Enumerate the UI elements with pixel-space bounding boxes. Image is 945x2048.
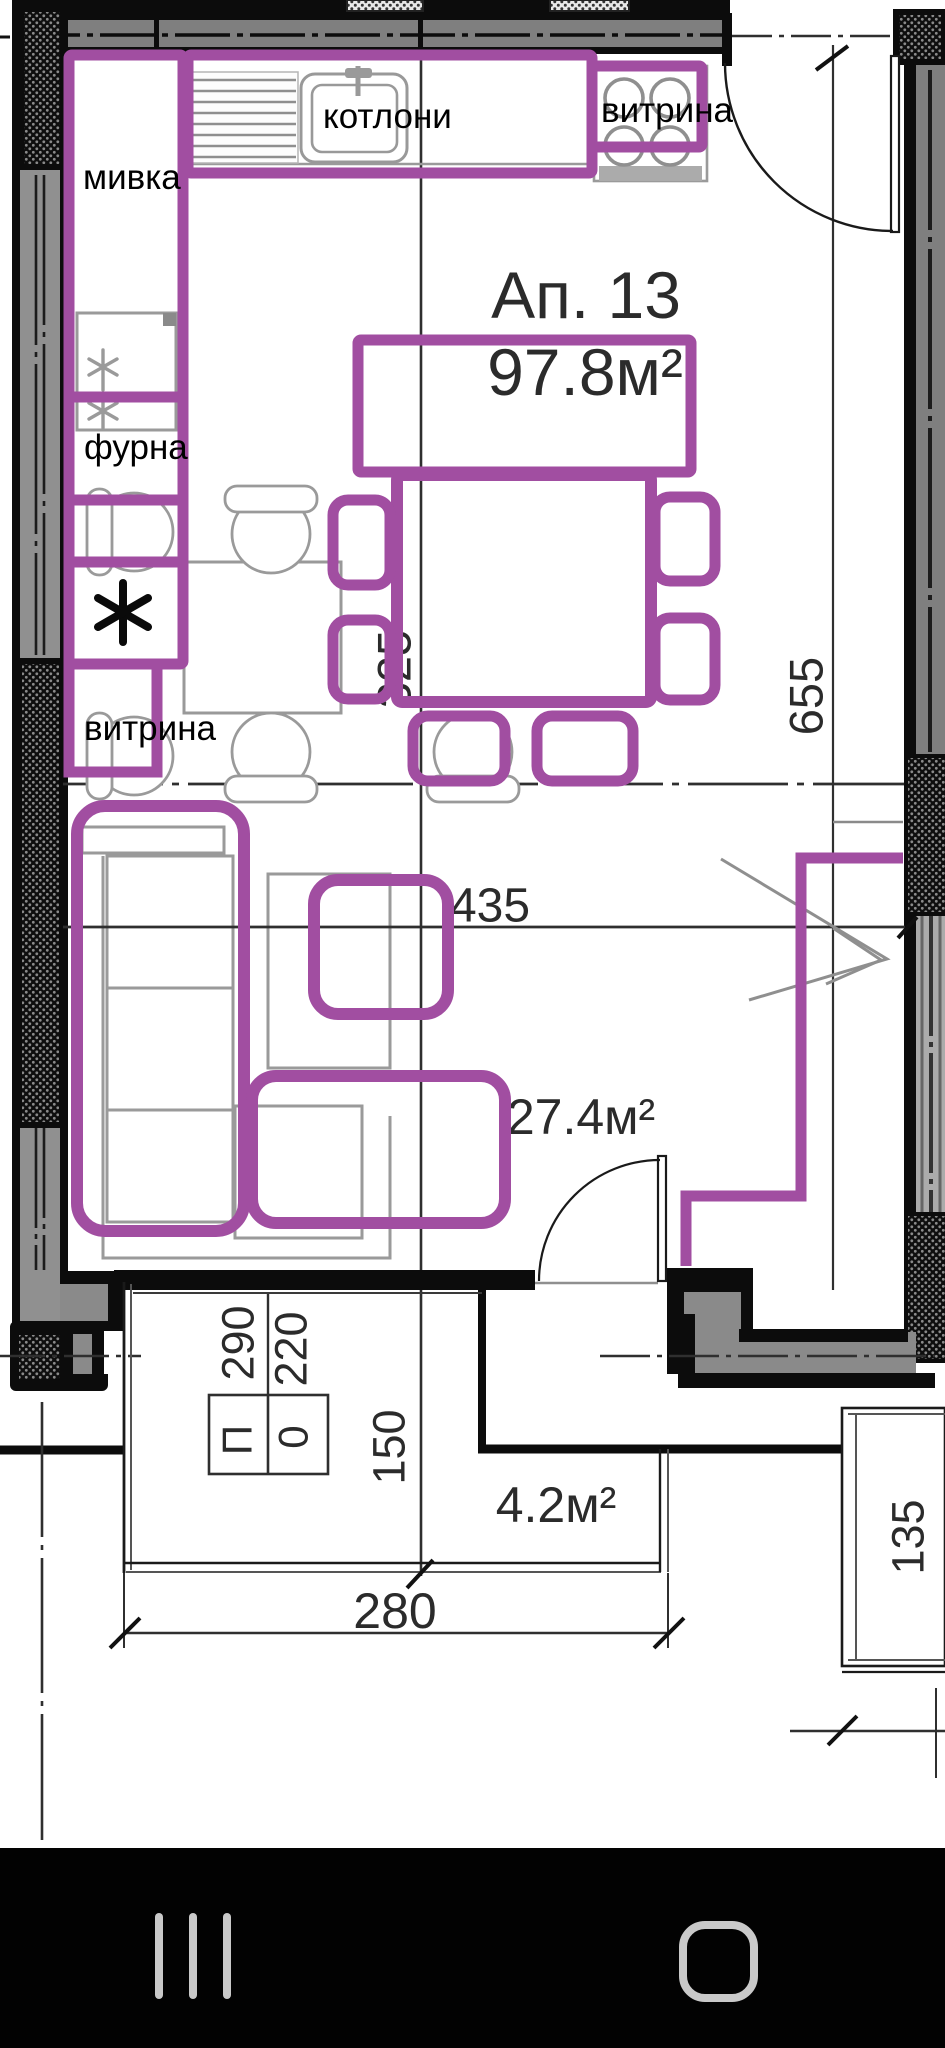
svg-text:котлони: котлони — [323, 97, 452, 136]
svg-text:135: 135 — [883, 1499, 934, 1574]
svg-text:П: П — [214, 1425, 261, 1455]
svg-text:27.4м²: 27.4м² — [507, 1089, 655, 1145]
svg-text:220: 220 — [266, 1311, 317, 1386]
svg-text:97.8м²: 97.8м² — [487, 335, 683, 409]
svg-text:4.2м²: 4.2м² — [496, 1477, 617, 1533]
svg-text:280: 280 — [353, 1583, 436, 1639]
svg-text:фурна: фурна — [84, 428, 188, 467]
svg-text:0: 0 — [270, 1425, 317, 1448]
svg-text:435: 435 — [450, 880, 530, 933]
svg-text:Ап. 13: Ап. 13 — [491, 258, 681, 332]
svg-text:мивка: мивка — [83, 158, 181, 197]
svg-text:витрина: витрина — [601, 91, 734, 130]
svg-text:655: 655 — [780, 657, 833, 735]
svg-text:290: 290 — [213, 1305, 264, 1380]
svg-text:витрина: витрина — [84, 709, 217, 748]
svg-text:150: 150 — [364, 1409, 415, 1484]
